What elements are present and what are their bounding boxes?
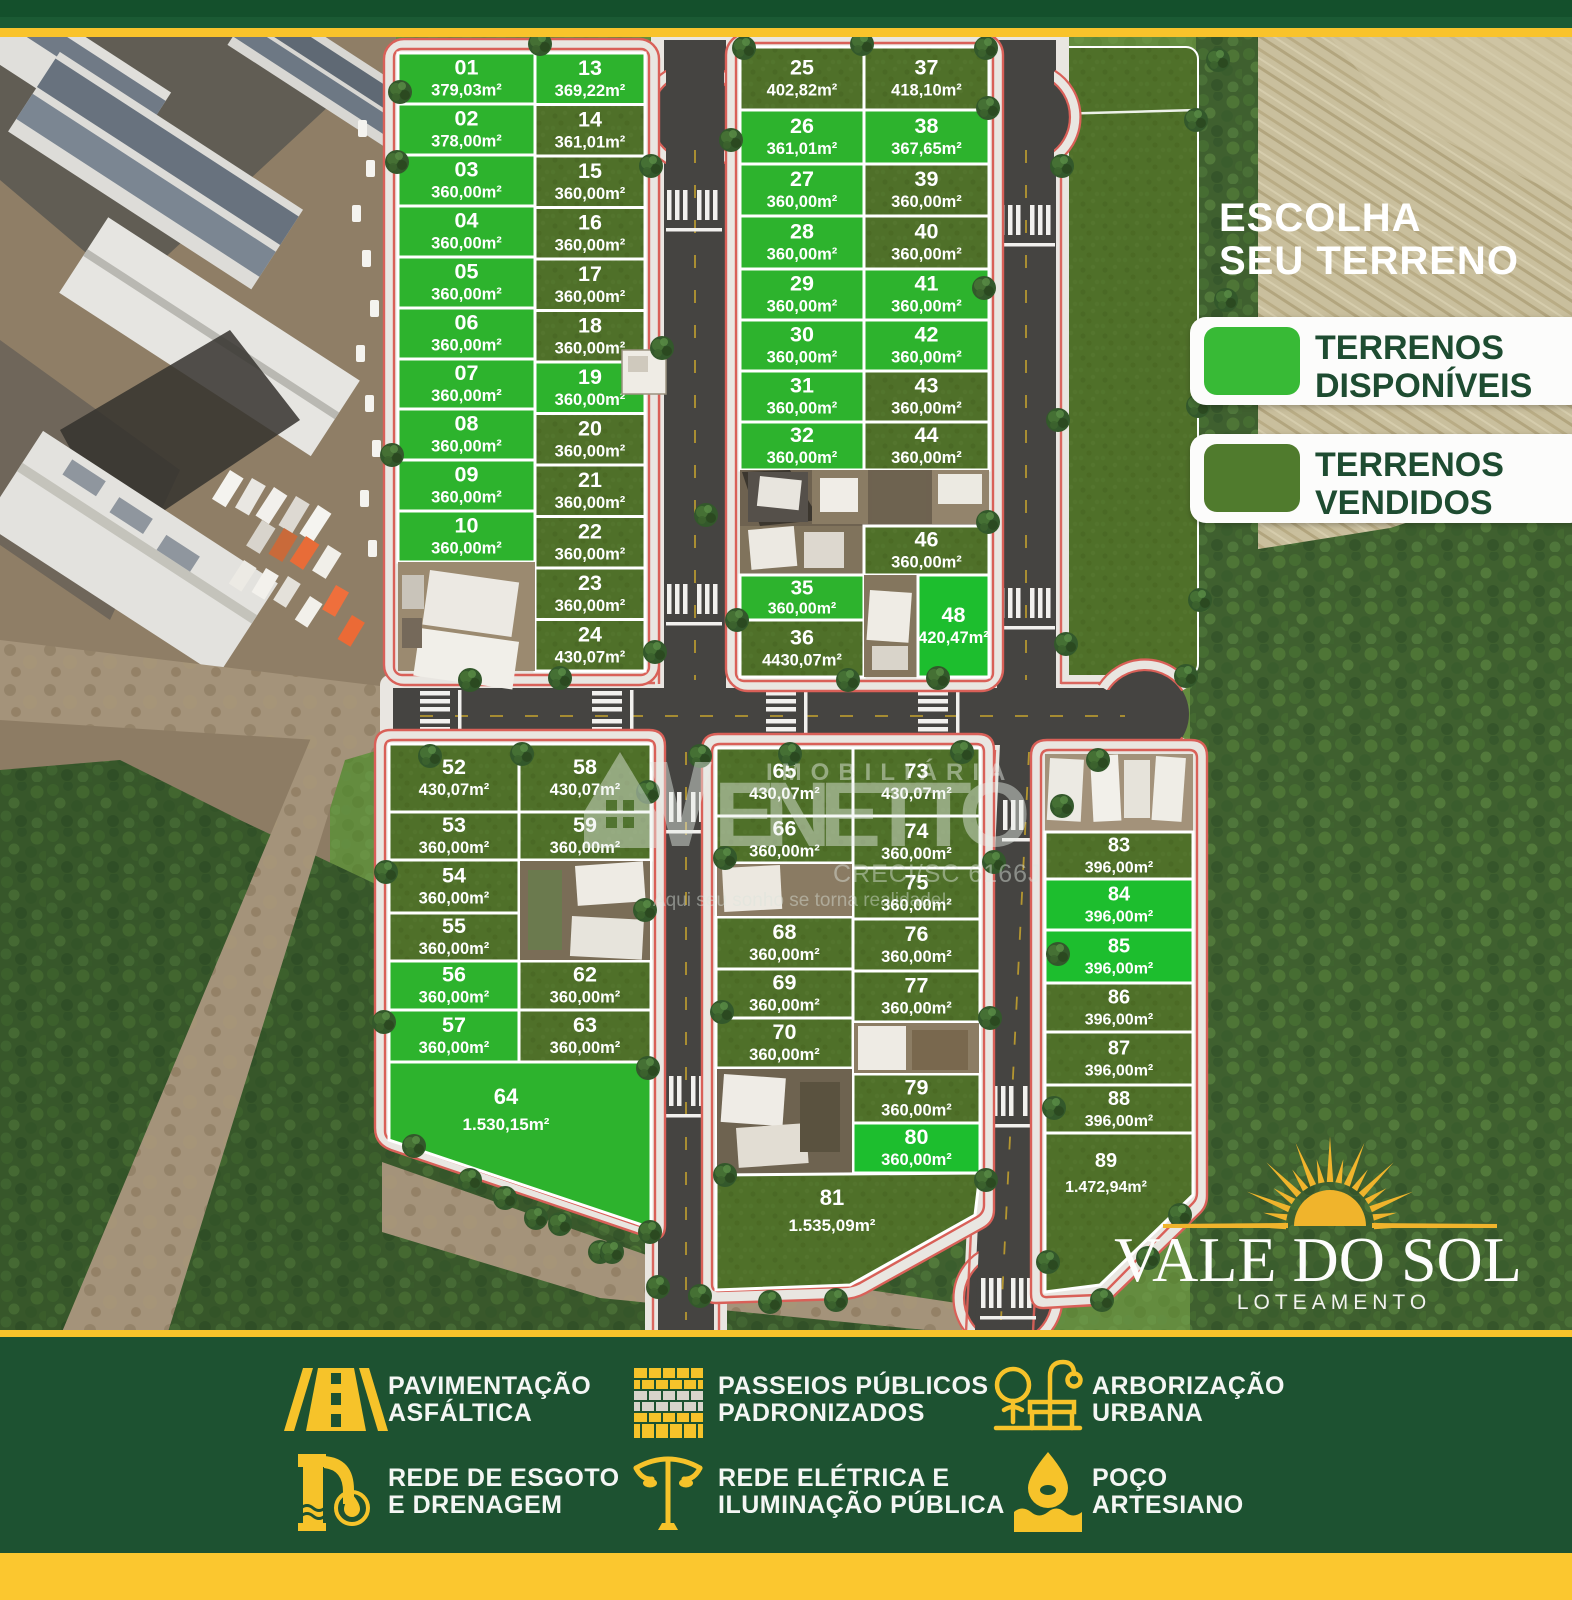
svg-text:01: 01	[455, 56, 479, 80]
svg-text:07: 07	[455, 361, 479, 385]
svg-text:35: 35	[791, 577, 814, 600]
svg-text:42: 42	[915, 323, 939, 347]
svg-text:46: 46	[915, 528, 939, 552]
svg-text:396,00m²: 396,00m²	[1085, 1063, 1154, 1080]
svg-text:41: 41	[915, 272, 939, 296]
svg-text:360,00m²: 360,00m²	[891, 193, 962, 211]
svg-text:430,07m²: 430,07m²	[555, 648, 626, 666]
svg-text:360,00m²: 360,00m²	[431, 337, 502, 355]
svg-text:430,07m²: 430,07m²	[419, 781, 490, 799]
svg-text:360,00m²: 360,00m²	[555, 597, 626, 615]
svg-text:24: 24	[578, 622, 602, 646]
svg-text:79: 79	[905, 1076, 929, 1100]
svg-text:44: 44	[915, 423, 939, 447]
svg-text:360,00m²: 360,00m²	[891, 554, 962, 572]
svg-text:360,00m²: 360,00m²	[550, 1039, 621, 1057]
svg-text:360,00m²: 360,00m²	[891, 449, 962, 467]
svg-text:32: 32	[790, 423, 814, 447]
svg-text:360,00m²: 360,00m²	[555, 236, 626, 254]
svg-text:10: 10	[455, 514, 479, 538]
svg-text:57: 57	[442, 1013, 466, 1037]
svg-text:36: 36	[790, 626, 814, 650]
svg-text:37: 37	[915, 56, 939, 80]
svg-text:22: 22	[578, 519, 602, 543]
svg-text:58: 58	[573, 755, 597, 779]
svg-text:360,00m²: 360,00m²	[419, 890, 490, 908]
svg-text:Aqui seu sonho se torna realid: Aqui seu sonho se torna realidade!	[653, 890, 947, 911]
svg-text:360,00m²: 360,00m²	[555, 185, 626, 203]
svg-text:367,65m²: 367,65m²	[891, 140, 962, 158]
svg-text:27: 27	[790, 167, 814, 191]
svg-text:18: 18	[578, 313, 602, 337]
svg-text:360,00m²: 360,00m²	[891, 349, 962, 367]
svg-text:02: 02	[455, 107, 479, 131]
svg-text:21: 21	[578, 468, 602, 492]
svg-text:360,00m²: 360,00m²	[419, 989, 490, 1007]
svg-text:52: 52	[442, 755, 466, 779]
svg-text:360,00m²: 360,00m²	[881, 1102, 952, 1120]
svg-text:396,00m²: 396,00m²	[1085, 860, 1154, 877]
svg-text:360,00m²: 360,00m²	[550, 989, 621, 1007]
svg-text:378,00m²: 378,00m²	[431, 133, 502, 151]
svg-text:360,00m²: 360,00m²	[555, 442, 626, 460]
svg-text:19: 19	[578, 365, 602, 389]
svg-text:63: 63	[573, 1013, 597, 1037]
svg-text:13: 13	[578, 56, 602, 80]
svg-text:360,00m²: 360,00m²	[431, 540, 502, 558]
svg-text:379,03m²: 379,03m²	[431, 82, 502, 100]
svg-text:30: 30	[790, 323, 814, 347]
svg-text:360,00m²: 360,00m²	[419, 1039, 490, 1057]
svg-text:360,00m²: 360,00m²	[555, 339, 626, 357]
svg-text:360,00m²: 360,00m²	[891, 400, 962, 418]
svg-text:360,00m²: 360,00m²	[767, 349, 838, 367]
svg-text:360,00m²: 360,00m²	[419, 839, 490, 857]
svg-text:360,00m²: 360,00m²	[431, 438, 502, 456]
svg-text:TERRENOSVENDIDOS: TERRENOSVENDIDOS	[1315, 446, 1504, 522]
svg-text:62: 62	[573, 963, 597, 987]
svg-text:48: 48	[942, 603, 966, 627]
svg-text:25: 25	[790, 56, 814, 80]
svg-text:360,00m²: 360,00m²	[767, 298, 838, 316]
svg-text:396,00m²: 396,00m²	[1085, 909, 1154, 926]
svg-text:04: 04	[455, 209, 479, 233]
svg-text:76: 76	[905, 922, 929, 946]
svg-text:IMOBILIÁRIA: IMOBILIÁRIA	[766, 758, 1014, 786]
svg-text:396,00m²: 396,00m²	[1085, 1113, 1154, 1130]
svg-text:360,00m²: 360,00m²	[555, 391, 626, 409]
svg-text:03: 03	[455, 158, 479, 182]
svg-text:31: 31	[790, 374, 814, 398]
svg-text:17: 17	[578, 262, 602, 286]
svg-text:402,82m²: 402,82m²	[767, 82, 838, 100]
svg-text:39: 39	[915, 167, 939, 191]
svg-text:360,00m²: 360,00m²	[555, 545, 626, 563]
svg-text:360,00m²: 360,00m²	[881, 1151, 952, 1169]
svg-text:361,01m²: 361,01m²	[555, 133, 626, 151]
svg-text:420,47m²: 420,47m²	[918, 629, 989, 647]
svg-text:14: 14	[578, 107, 602, 131]
svg-text:360,00m²: 360,00m²	[768, 601, 837, 618]
svg-text:16: 16	[578, 210, 602, 234]
svg-text:CRECI/SC 6166J: CRECI/SC 6166J	[833, 860, 1042, 888]
svg-text:85: 85	[1108, 936, 1130, 958]
svg-text:360,00m²: 360,00m²	[431, 489, 502, 507]
svg-text:89: 89	[1095, 1150, 1117, 1172]
svg-text:360,00m²: 360,00m²	[555, 288, 626, 306]
svg-text:360,00m²: 360,00m²	[767, 449, 838, 467]
svg-text:20: 20	[578, 416, 602, 440]
svg-text:15: 15	[578, 159, 602, 183]
svg-text:LOTEAMENTO: LOTEAMENTO	[1237, 1291, 1431, 1314]
svg-text:360,00m²: 360,00m²	[555, 494, 626, 512]
svg-text:87: 87	[1108, 1038, 1130, 1060]
svg-text:28: 28	[790, 220, 814, 244]
svg-text:70: 70	[773, 1020, 797, 1044]
svg-text:396,00m²: 396,00m²	[1085, 1012, 1154, 1029]
svg-text:06: 06	[455, 311, 479, 335]
svg-text:05: 05	[455, 260, 479, 284]
svg-text:55: 55	[442, 914, 466, 938]
svg-text:360,00m²: 360,00m²	[881, 1000, 952, 1018]
svg-text:83: 83	[1108, 835, 1130, 857]
svg-text:68: 68	[773, 920, 797, 944]
svg-text:1.530,15m²: 1.530,15m²	[463, 1115, 550, 1134]
svg-text:418,10m²: 418,10m²	[891, 82, 962, 100]
svg-text:86: 86	[1108, 987, 1130, 1009]
svg-text:360,00m²: 360,00m²	[891, 246, 962, 264]
svg-text:360,00m²: 360,00m²	[767, 400, 838, 418]
svg-text:77: 77	[905, 974, 929, 998]
svg-text:08: 08	[455, 412, 479, 436]
svg-text:09: 09	[455, 463, 479, 487]
svg-text:360,00m²: 360,00m²	[749, 946, 820, 964]
svg-text:29: 29	[790, 272, 814, 296]
svg-text:VALE DO SOL: VALE DO SOL	[1114, 1224, 1522, 1295]
svg-text:369,22m²: 369,22m²	[555, 82, 626, 100]
svg-text:53: 53	[442, 813, 466, 837]
svg-text:360,00m²: 360,00m²	[431, 286, 502, 304]
svg-text:26: 26	[790, 114, 814, 138]
svg-text:360,00m²: 360,00m²	[767, 193, 838, 211]
svg-text:23: 23	[578, 571, 602, 595]
svg-text:54: 54	[442, 864, 466, 888]
svg-text:88: 88	[1108, 1088, 1130, 1110]
svg-text:40: 40	[915, 220, 939, 244]
svg-text:360,00m²: 360,00m²	[431, 387, 502, 405]
svg-text:64: 64	[494, 1084, 519, 1109]
svg-text:360,00m²: 360,00m²	[419, 940, 490, 958]
svg-text:43: 43	[915, 374, 939, 398]
svg-text:360,00m²: 360,00m²	[431, 184, 502, 202]
svg-text:81: 81	[820, 1185, 844, 1210]
svg-text:360,00m²: 360,00m²	[749, 1046, 820, 1064]
svg-text:84: 84	[1108, 884, 1131, 906]
svg-text:1.472,94m²: 1.472,94m²	[1065, 1179, 1147, 1196]
svg-text:361,01m²: 361,01m²	[767, 140, 838, 158]
svg-text:360,00m²: 360,00m²	[431, 235, 502, 253]
svg-text:360,00m²: 360,00m²	[881, 948, 952, 966]
svg-text:80: 80	[905, 1125, 929, 1149]
svg-text:TERRENOSDISPONÍVEIS: TERRENOSDISPONÍVEIS	[1315, 329, 1532, 405]
svg-text:360,00m²: 360,00m²	[749, 997, 820, 1015]
svg-text:38: 38	[915, 114, 939, 138]
svg-text:69: 69	[773, 971, 797, 995]
svg-text:1.535,09m²: 1.535,09m²	[789, 1216, 876, 1235]
svg-text:396,00m²: 396,00m²	[1085, 961, 1154, 978]
svg-text:56: 56	[442, 963, 466, 987]
svg-text:360,00m²: 360,00m²	[891, 298, 962, 316]
svg-text:4430,07m²: 4430,07m²	[762, 652, 842, 670]
svg-text:360,00m²: 360,00m²	[767, 246, 838, 264]
